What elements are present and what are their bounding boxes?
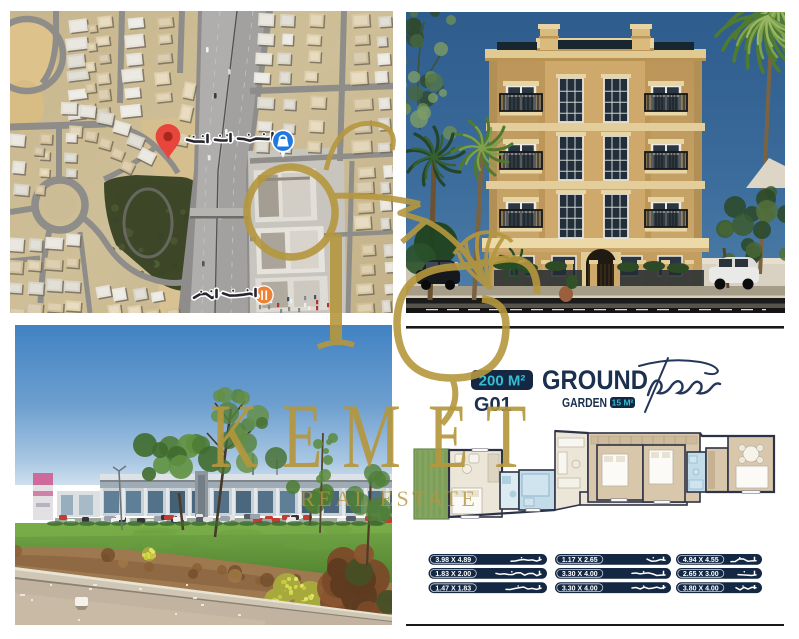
svg-text:E: E <box>428 387 468 488</box>
svg-text:K: K <box>210 387 258 488</box>
svg-text:E: E <box>282 387 322 488</box>
svg-text:T: T <box>486 387 526 488</box>
svg-text:REAL ESTATE: REAL ESTATE <box>300 486 478 511</box>
svg-text:M: M <box>342 387 401 488</box>
